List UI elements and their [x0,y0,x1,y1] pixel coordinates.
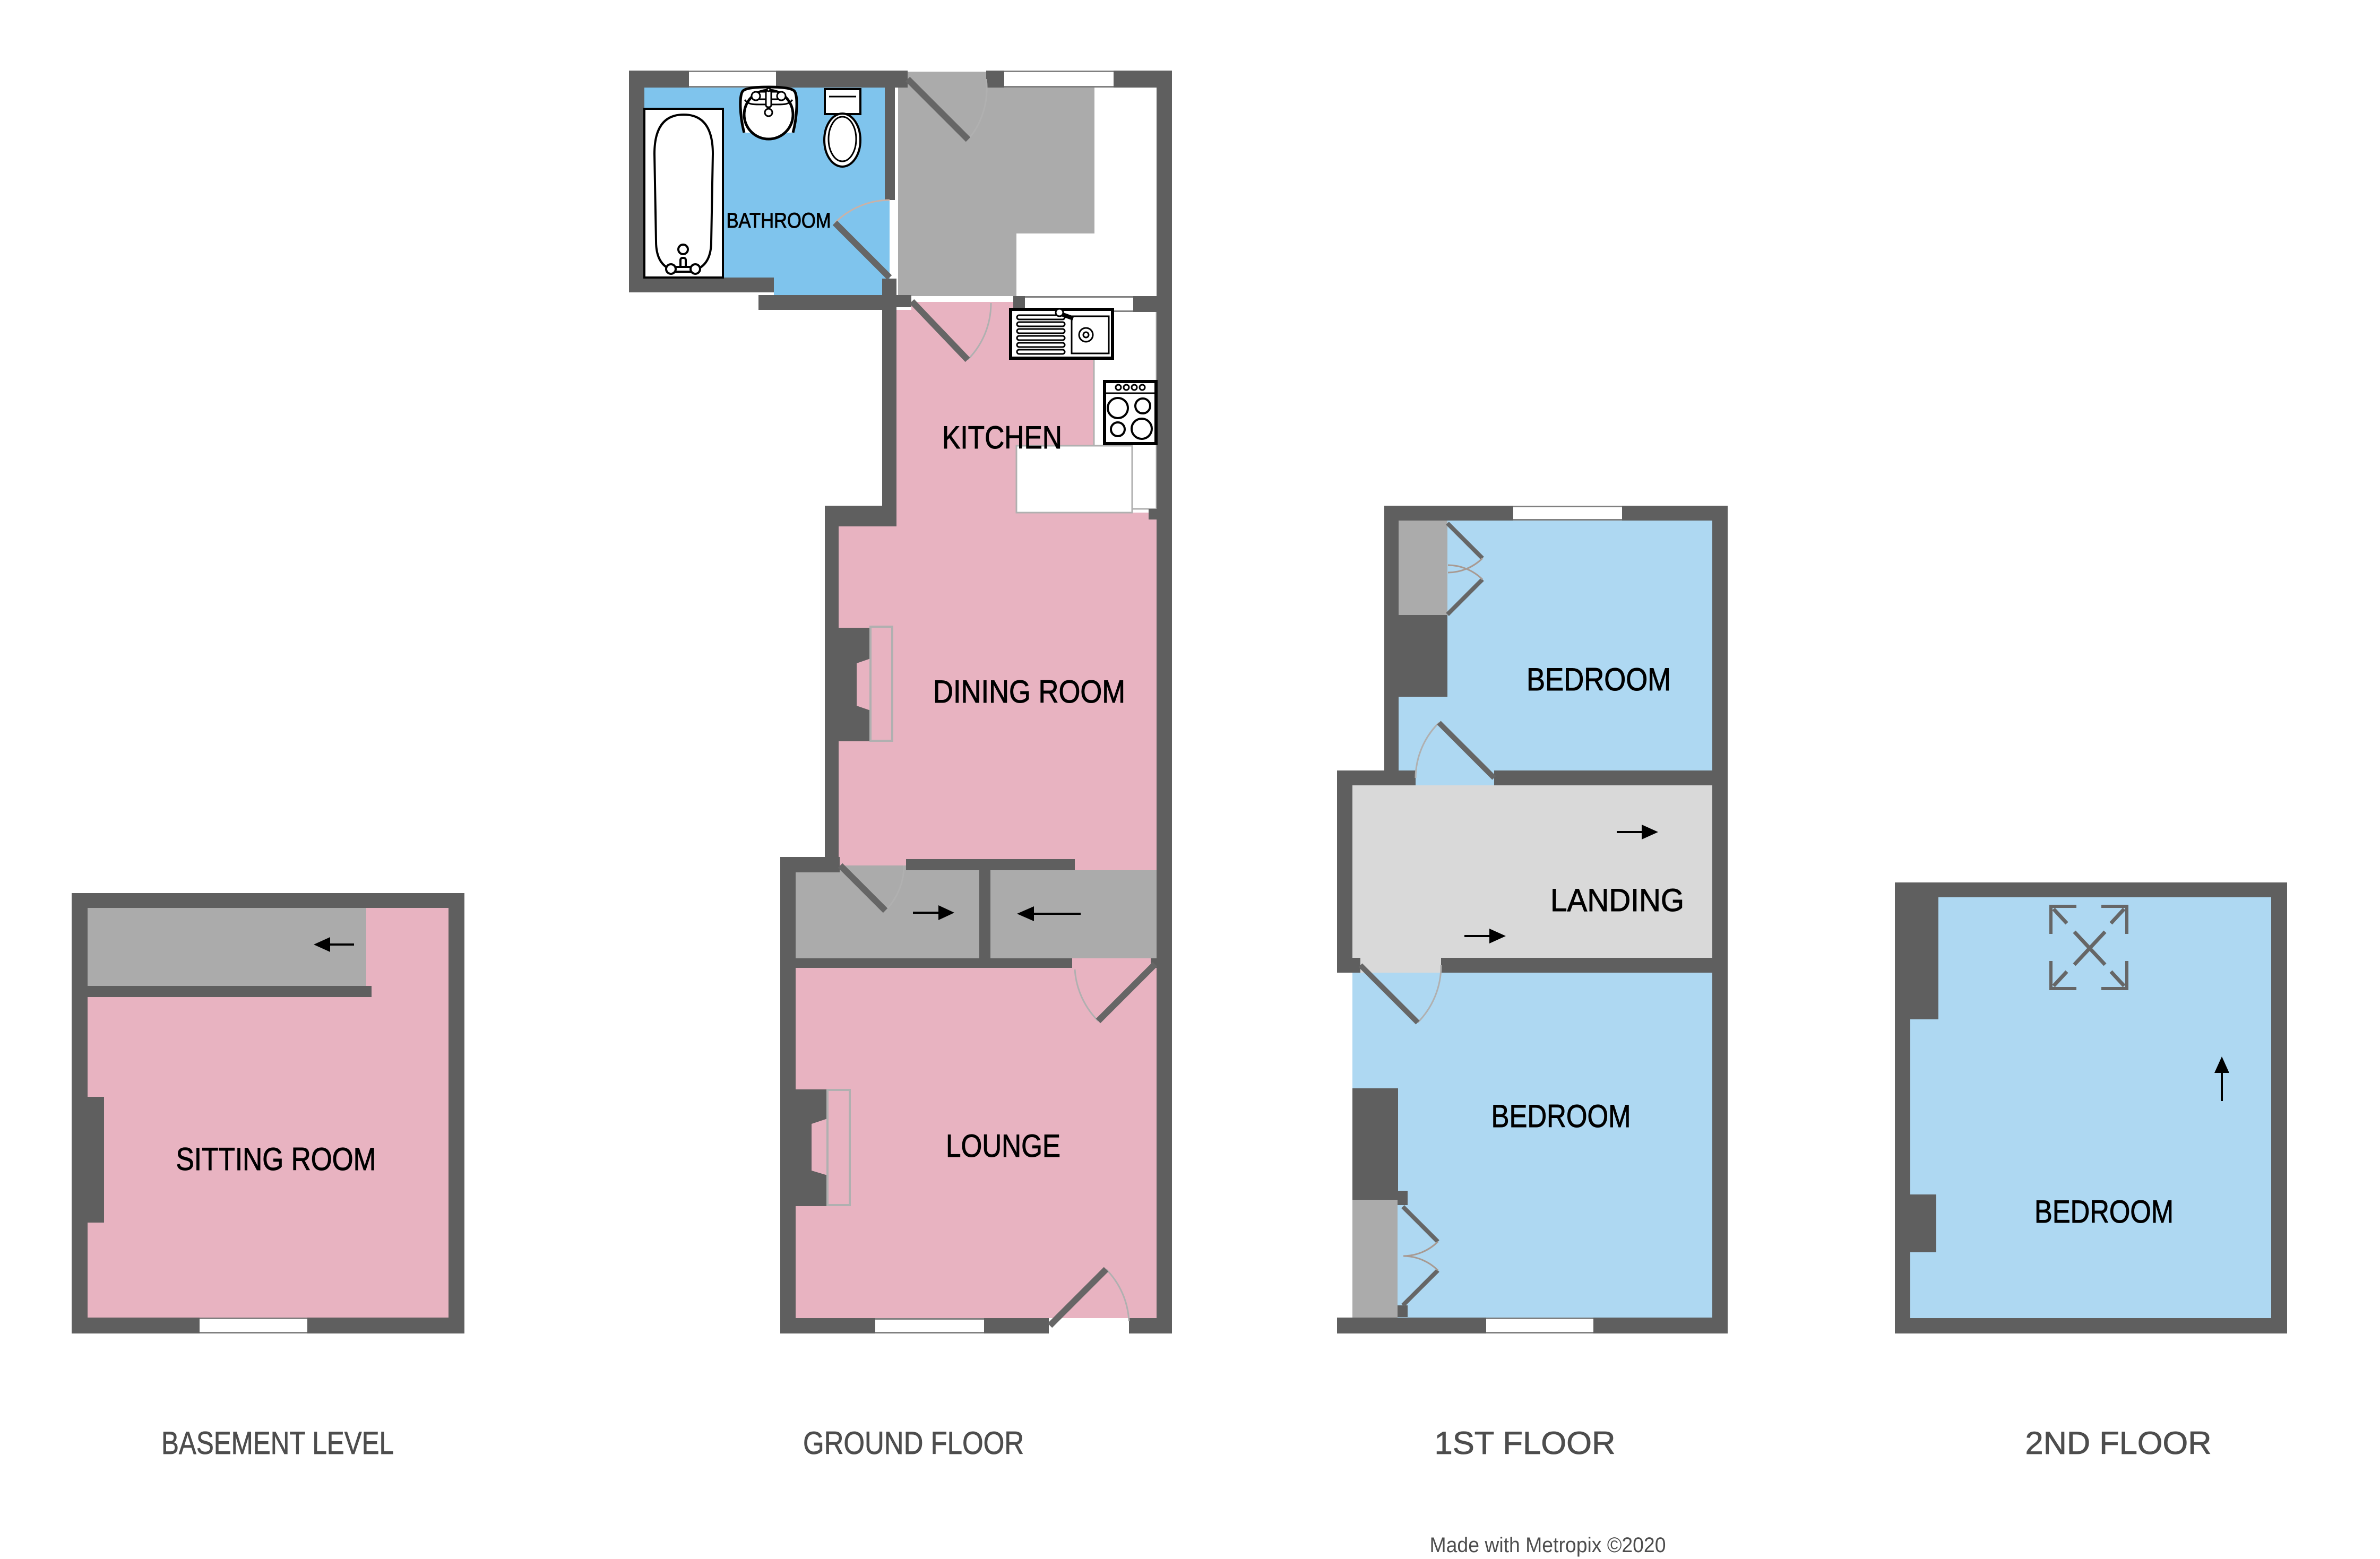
svg-text:BATHROOM: BATHROOM [727,209,831,232]
svg-text:BASEMENT LEVEL: BASEMENT LEVEL [161,1425,394,1461]
svg-text:BEDROOM: BEDROOM [1527,662,1671,697]
svg-text:SITTING ROOM: SITTING ROOM [176,1141,376,1177]
svg-text:2ND FLOOR: 2ND FLOOR [2025,1425,2212,1461]
svg-text:BEDROOM: BEDROOM [1491,1098,1631,1134]
svg-text:Made with Metropix ©2020: Made with Metropix ©2020 [1430,1534,1666,1557]
svg-text:GROUND FLOOR: GROUND FLOOR [803,1425,1024,1461]
svg-text:LANDING: LANDING [1550,882,1684,918]
svg-text:DINING ROOM: DINING ROOM [933,674,1125,709]
svg-text:KITCHEN: KITCHEN [942,420,1062,455]
svg-text:LOUNGE: LOUNGE [946,1128,1060,1164]
svg-text:1ST FLOOR: 1ST FLOOR [1435,1425,1616,1461]
svg-text:BEDROOM: BEDROOM [2034,1194,2174,1229]
